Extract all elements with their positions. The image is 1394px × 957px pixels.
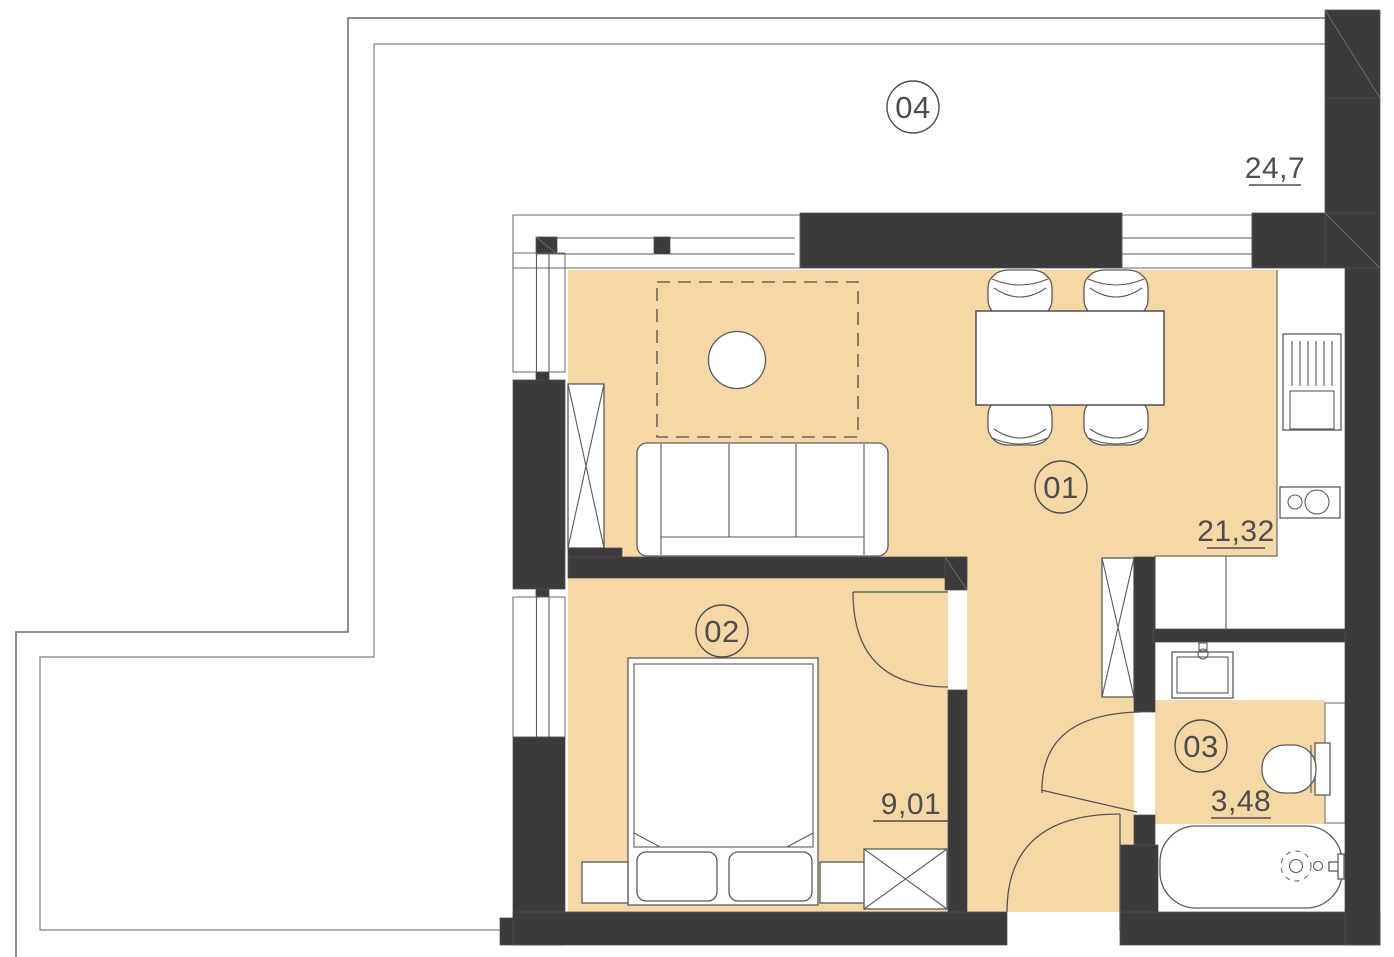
toilet [1262, 743, 1330, 795]
nightstand-right [820, 862, 866, 903]
bed [628, 658, 818, 905]
wardrobe [864, 849, 947, 909]
room-number: 01 [1043, 470, 1078, 505]
room-area: 3,48 [1211, 785, 1271, 818]
coffee-table [709, 332, 766, 389]
wall-segment [513, 912, 1007, 945]
room-label-terrace: 04 24,7 [887, 81, 1305, 185]
wall-segment [513, 380, 565, 589]
tub-faucet-plate [1338, 854, 1344, 879]
room-number: 02 [704, 614, 739, 649]
wall-segment [1120, 912, 1380, 945]
wall-segment [1120, 845, 1158, 912]
wall-segment [1345, 268, 1380, 945]
sofa-body [637, 443, 888, 556]
wall-living-bedroom [568, 557, 967, 578]
window [1122, 215, 1252, 268]
room-area: 21,32 [1197, 515, 1275, 548]
window [513, 597, 565, 737]
bathtub-body [1160, 826, 1342, 908]
wall-segment [500, 918, 513, 945]
nightstand-left [582, 862, 628, 903]
room-area: 24,7 [1245, 152, 1305, 185]
kitchen-sink [1280, 487, 1340, 518]
wall-segment [800, 213, 1122, 268]
toilet-tank [1315, 743, 1330, 795]
shaft-living [568, 384, 604, 548]
wall-kitchen-bath [1153, 629, 1345, 642]
dining-table [976, 311, 1164, 405]
bathroom-sink [1172, 643, 1233, 698]
wall-hall-bath [1134, 557, 1155, 712]
floor-plan-drawing: 04 24,7 01 21,32 02 9,01 03 3,48 [0, 0, 1394, 957]
shaft-hallway [1102, 558, 1134, 697]
wall-segment [1252, 213, 1325, 268]
wall-hall-bath [1134, 815, 1155, 845]
floor-plan-canvas: 04 24,7 01 21,32 02 9,01 03 3,48 [0, 0, 1394, 957]
room-area: 9,01 [881, 788, 941, 821]
window-mullion [654, 237, 670, 254]
pillow [637, 852, 717, 901]
wall-bedroom-hall [948, 690, 967, 912]
room-number: 04 [895, 90, 930, 125]
window [513, 253, 565, 372]
sofa [637, 443, 888, 556]
pillow [729, 852, 812, 901]
wall-segment [1325, 98, 1380, 213]
stove [1283, 334, 1341, 430]
window-sill-post [536, 589, 549, 597]
room-number: 03 [1183, 729, 1218, 764]
bathtub [1160, 826, 1344, 908]
wall-segment [568, 548, 622, 557]
